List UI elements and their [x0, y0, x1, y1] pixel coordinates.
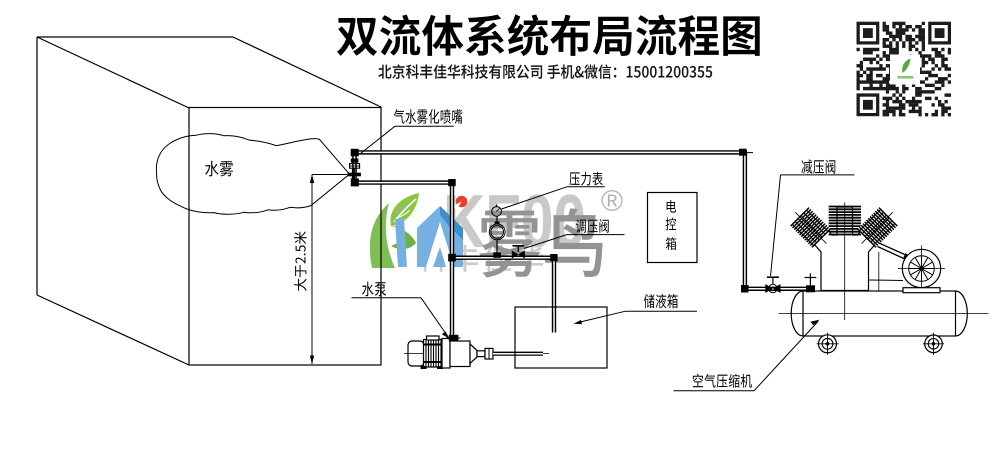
svg-text:®: ®: [601, 185, 623, 218]
